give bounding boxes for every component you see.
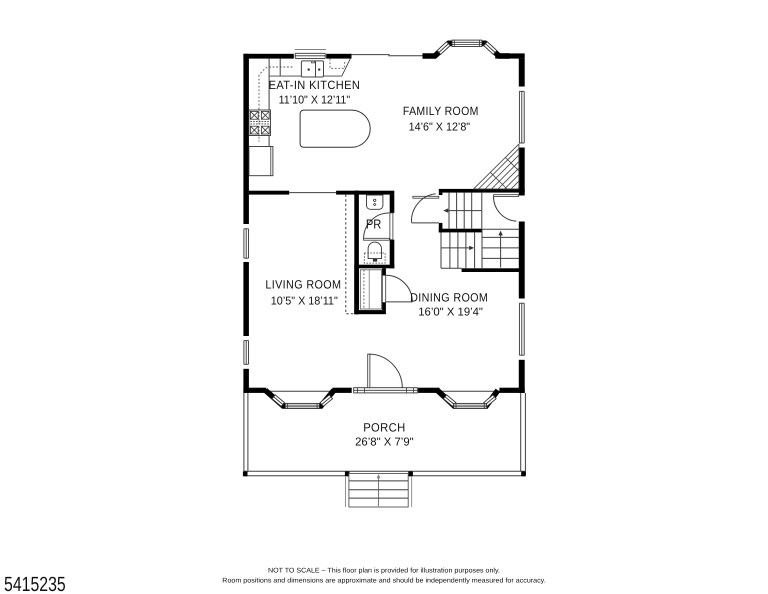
svg-text:11’10" X 12’11": 11’10" X 12’11" [279, 95, 351, 107]
svg-text:10’5" X 18’11": 10’5" X 18’11" [271, 296, 338, 308]
svg-text:26’8" X 7’9": 26’8" X 7’9" [355, 437, 414, 449]
svg-text:16’0" X 19’4": 16’0" X 19’4" [418, 307, 483, 319]
svg-text:EAT-IN KITCHEN: EAT-IN KITCHEN [269, 78, 361, 92]
svg-text:LIVING ROOM: LIVING ROOM [265, 278, 341, 292]
svg-text:FAMILY ROOM: FAMILY ROOM [403, 104, 479, 118]
svg-text:DINING ROOM: DINING ROOM [410, 291, 488, 305]
svg-text:Room positions and dimensions: Room positions and dimensions are approx… [222, 578, 546, 585]
svg-text:5415235: 5415235 [4, 573, 66, 594]
svg-text:PORCH: PORCH [363, 421, 405, 435]
svg-text:PR: PR [366, 217, 382, 232]
svg-text:14’6" X 12’8": 14’6" X 12’8" [409, 122, 471, 134]
svg-text:NOT TO SCALE – This floor plan: NOT TO SCALE – This floor plan is provid… [268, 568, 500, 575]
